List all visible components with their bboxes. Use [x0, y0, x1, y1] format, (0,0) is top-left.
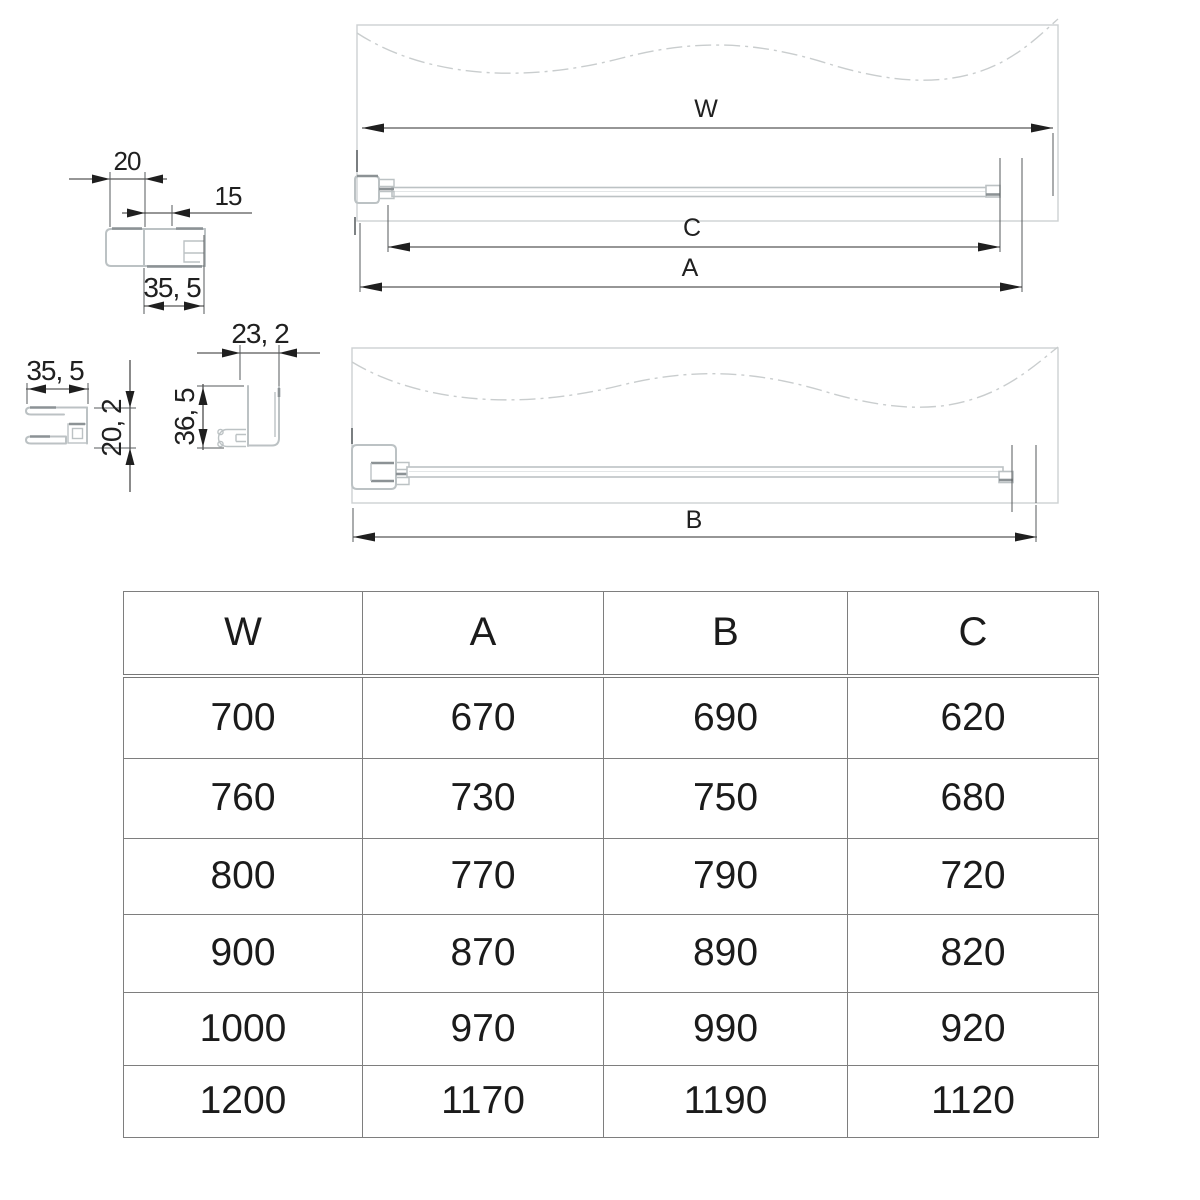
cell-a: 730: [363, 758, 604, 839]
profile-hook: [184, 241, 205, 262]
hook-square: [68, 424, 87, 443]
hook-square-inner: [73, 429, 83, 439]
dim-label-A: A: [682, 254, 699, 282]
table-row: 760 730 750 680: [124, 758, 1099, 839]
arrowhead: [92, 175, 110, 184]
cell-b: 890: [604, 914, 848, 993]
table-row: 900 870 890 820: [124, 914, 1099, 993]
dim-label-15: 15: [215, 181, 242, 211]
cell-b: 790: [604, 839, 848, 914]
cell-b: 1190: [604, 1065, 848, 1138]
profile-walls: [144, 229, 205, 266]
table-row: 1000 970 990 920: [124, 993, 1099, 1065]
dim-label-20: 20: [114, 146, 141, 176]
profile-dark-accents: [30, 408, 85, 437]
arrowhead: [1000, 283, 1022, 292]
cell-c: 620: [848, 676, 1099, 759]
profile-outline: [106, 229, 205, 266]
dim-label-35-5b: 35, 5: [26, 355, 84, 386]
cell-c: 1120: [848, 1065, 1099, 1138]
col-header-a: A: [363, 592, 604, 676]
top-view-open: B: [352, 347, 1058, 542]
cell-w: 700: [124, 676, 363, 759]
top-view-closed: W C A: [355, 19, 1058, 292]
profile-body: [106, 229, 205, 267]
dim-label-36-5: 36, 5: [169, 388, 200, 446]
arrowhead: [1015, 533, 1037, 542]
cell-b: 990: [604, 993, 848, 1065]
size-table: W A B C 700 670 690 620 760 730 750 680 …: [123, 591, 1099, 1138]
extension-lines-20: [110, 172, 145, 227]
size-table-header-row: W A B C: [124, 592, 1099, 676]
profile-dark-accents: [112, 229, 203, 267]
table-row: 700 670 690 620: [124, 676, 1099, 759]
cell-a: 670: [363, 676, 604, 759]
cell-w: 800: [124, 839, 363, 914]
dim-label-W: W: [694, 95, 718, 123]
dim-label-B: B: [686, 506, 703, 534]
extension-lines: [240, 345, 279, 388]
cell-b: 690: [604, 676, 848, 759]
profile-top-rail-section: 20 15 35, 5: [69, 146, 252, 314]
extension-lines: [27, 383, 88, 404]
arrowhead: [145, 175, 163, 184]
col-header-w: W: [124, 592, 363, 676]
cell-c: 920: [848, 993, 1099, 1065]
table-row: 1200 1170 1190 1120: [124, 1065, 1099, 1138]
cell-c: 720: [848, 839, 1099, 914]
arrowhead: [353, 533, 375, 542]
arrowhead: [172, 209, 190, 218]
arrowhead: [127, 209, 145, 218]
cell-w: 760: [124, 758, 363, 839]
spec-sheet: 20 15 35, 5 35, 5: [0, 0, 1200, 1200]
cell-w: 1200: [124, 1065, 363, 1138]
dim-label-20-2: 20, 2: [96, 399, 127, 457]
cell-a: 770: [363, 839, 604, 914]
profile-body: [218, 386, 279, 447]
wall-bracket-right: [999, 472, 1013, 483]
cell-w: 900: [124, 914, 363, 993]
table-row: 800 770 790 720: [124, 839, 1099, 914]
cell-w: 1000: [124, 993, 363, 1065]
dim-label-23-2: 23, 2: [231, 318, 289, 349]
cell-c: 820: [848, 914, 1099, 993]
col-header-b: B: [604, 592, 848, 676]
wall-bracket-right: [986, 186, 1000, 198]
dim-label-C: C: [683, 214, 701, 242]
arrowhead: [388, 243, 410, 252]
arrowhead: [222, 349, 240, 358]
cell-b: 750: [604, 758, 848, 839]
cell-a: 970: [363, 993, 604, 1065]
arrowhead: [978, 243, 1000, 252]
glass-panel: [352, 348, 1058, 503]
profile-body: [26, 408, 87, 444]
profile-side-seal-section: 23, 2 36, 5: [169, 318, 320, 450]
dim-label-35-5: 35, 5: [143, 272, 201, 303]
arrowhead: [360, 283, 382, 292]
cell-c: 680: [848, 758, 1099, 839]
cell-a: 870: [363, 914, 604, 993]
cell-a: 1170: [363, 1065, 604, 1138]
col-header-c: C: [848, 592, 1099, 676]
profile-bottom-seal-section: 35, 5 20, 2: [26, 355, 136, 492]
arrowhead: [279, 349, 297, 358]
